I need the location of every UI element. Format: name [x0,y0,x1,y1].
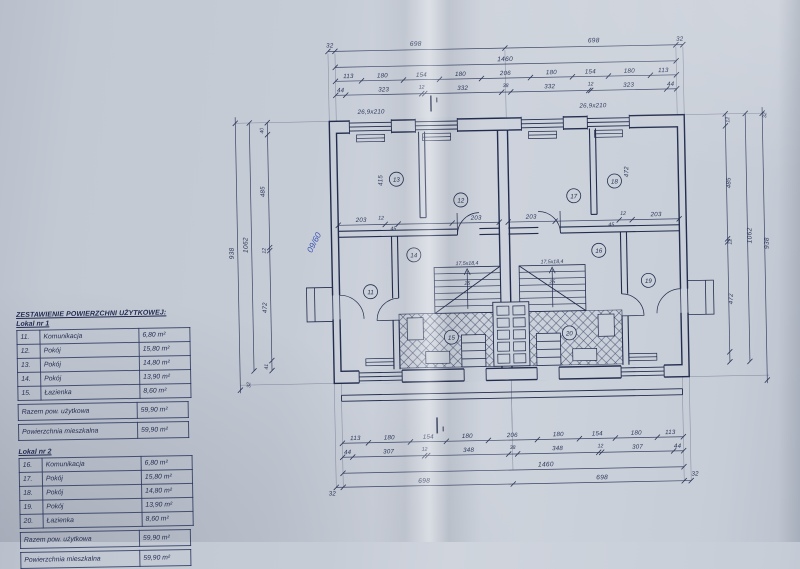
lokal2-living-area: Powierzchnia mieszkalna 59,90 m² [20,549,191,569]
room-number: 18 [611,178,619,185]
lokal1-table: 11. Komunikacja 6,80 m² 12. Pokój 15,80 … [16,327,191,401]
stair-label: 17,5x18,4 [456,261,479,267]
dim-label: 12 [422,447,428,453]
dim-label: 154 [423,434,434,441]
terrace-edge [342,389,683,402]
room-number: 17 [570,193,578,200]
dim-label: 698 [596,474,608,481]
dim-label: 154 [416,72,427,79]
dim-label: 485 [259,186,266,197]
dimension-lines [234,43,769,489]
section-label: I [442,426,444,433]
dim-label: 32 [676,36,684,43]
stair-step-count: 25 [548,279,555,285]
dim-label: 332 [544,83,555,90]
room-area: 13,90 m² [140,369,191,384]
dim-label: 180 [455,71,466,78]
dim-label: 323 [623,82,634,89]
room-number: 13 [393,177,401,184]
dim-label: 113 [350,435,361,442]
dim-label: 1062 [746,227,753,243]
extension-lines [234,45,771,489]
dim-label: 44 [344,449,352,456]
living-value: 59,90 m² [140,549,191,566]
room-no: 11. [17,330,40,344]
dim-label: 206 [506,432,518,439]
dim-label: 180 [624,68,635,75]
room-no: 18. [20,486,43,500]
room-no: 12. [17,344,40,358]
room-number: 12 [457,197,465,204]
dim-label: 206 [499,70,511,77]
living-value: 59,90 m² [137,422,188,439]
dim-label: 203 [470,215,482,222]
room-no: 13. [17,358,40,372]
floor-plan: I I 32 698 1460 698 32 113 180 154 180 2… [217,0,800,530]
table-row: 15. Łazienka 8,60 m² [18,383,191,400]
dim-label: 698 [418,478,430,485]
room-area: 14,80 m² [142,483,193,498]
room-no: 20. [20,514,43,528]
dim-label: 323 [378,86,389,93]
total-label: Razem pow. użytkowa [18,402,137,420]
dim-label: 154 [592,430,603,437]
total-label: Razem pow. użytkowa [20,530,139,548]
dim-label: 32 [691,470,699,477]
dim-label: 472 [728,293,735,304]
dim-label: 203 [525,213,537,220]
room-area: 14,80 m² [139,355,190,370]
dim-label: 1062 [242,237,249,253]
room-number: 16 [595,248,603,255]
dim-label: 32 [246,382,252,388]
dim-label: 332 [457,85,468,92]
dim-label: 180 [377,72,388,79]
staircase-left [434,266,501,313]
dim-label: 44 [337,87,345,94]
room-number: 11 [367,289,374,296]
room-area: 15,80 m² [141,469,192,484]
dim-label: 44 [674,443,682,450]
dim-label: 348 [463,447,474,454]
room-number: 20 [565,330,574,337]
room-name: Łazienka [43,512,142,528]
room-no: 15. [18,386,41,400]
room-no: 14. [18,372,41,386]
dim-label: 203 [355,217,367,224]
room-number: 19 [645,278,653,285]
table-row: 20. Łazienka 8,60 m² [20,511,193,528]
window-size-label: 26,9x210 [356,108,385,116]
room-number: 15 [448,335,456,342]
dim-label: 40 [259,128,265,134]
dim-labels-left: 40 485 12 472 41 1062 938 32 [226,128,270,389]
room-no: 17. [19,472,42,486]
dim-label: 348 [552,445,563,452]
dim-label: 307 [632,443,643,450]
room-area: 6,80 m² [139,327,190,342]
room-no: 19. [20,500,43,514]
dim-label: 1460 [538,461,554,468]
dim-label: 44 [667,81,675,88]
dim-label: 12 [419,85,425,91]
dim-label: 32 [326,42,334,49]
stair-step-count: 25 [463,281,470,287]
dimension-ticks [231,41,772,492]
window-size-label: 26,9x210 [578,102,607,110]
dim-label: 203 [650,211,662,218]
lokal2-table: 16. Komunikacja 6,80 m² 17. Pokój 15,80 … [19,455,194,529]
section-marks: I I [431,95,444,433]
dim-label: 1460 [497,56,513,63]
lokal1-total-usable: Razem pow. użytkowa 59,90 m² [18,401,189,421]
dim-label: 180 [384,434,395,441]
photographed-blueprint-page: { "tables": { "title": "ZESTAWIENIE POWI… [0,0,800,542]
dim-label: 472 [262,302,269,313]
dim-label: 180 [631,430,642,437]
floor-plan-drawing: I I 32 698 1460 698 32 113 180 154 180 2… [217,0,800,530]
dim-label: 154 [585,68,596,75]
dim-label: 485 [725,177,732,188]
total-value: 59,90 m² [139,529,190,546]
dim-label: 12 [598,443,604,449]
dim-label: 38 [510,445,516,451]
dim-label: 307 [383,448,394,455]
dim-label: 12 [728,239,734,245]
section-label: I [436,97,438,104]
dim-label: 12 [620,211,626,217]
living-label: Powierzchnia mieszkalna [21,550,140,568]
dim-label: 180 [546,69,557,76]
dim-label: 113 [665,429,676,436]
dim-label: 45 [608,222,614,228]
area-summary-tables: ZESTAWIENIE POWIERZCHNI UŻYTKOWEJ: Lokal… [16,309,196,569]
dim-label: 32 [329,490,337,497]
chimney-flues [493,302,530,367]
room-area: 15,80 m² [139,341,190,356]
dim-label: 41 [264,364,270,370]
dim-label: 45 [390,226,396,232]
room-area: 8,60 m² [140,383,191,398]
dim-label: 32 [762,112,768,118]
living-label: Powierzchnia mieszkalna [18,422,137,440]
dim-label: 698 [410,41,422,48]
room-area: 13,90 m² [142,497,193,512]
dim-label: 113 [658,67,669,74]
dim-label: 698 [588,37,600,44]
dim-label: 472 [623,166,630,177]
dim-label: 38 [503,83,509,89]
room-name: Łazienka [41,384,140,400]
dim-labels-bottom: 113 180 154 180 206 180 154 180 113 44 3… [328,428,700,497]
dim-label: 180 [553,431,564,438]
room-area: 8,60 m² [142,511,193,526]
dim-label: 113 [343,73,354,80]
dim-label: 12 [588,81,594,87]
dim-label: 415 [377,175,384,186]
dim-label: 938 [229,247,236,259]
room-area: 6,80 m² [141,455,192,470]
handwritten-note: 09/60 [305,230,324,254]
dim-label: 938 [764,237,771,249]
lokal2-total-usable: Razem pow. użytkowa 59,90 m² [20,529,191,549]
dim-label: 12 [725,117,731,123]
room-number: 14 [410,252,418,259]
dim-label: 180 [462,433,473,440]
room-no: 16. [19,458,42,472]
dim-label: 12 [262,248,268,254]
total-value: 59,90 m² [137,402,188,419]
dim-label: 12 [378,215,384,221]
stair-label: 17,5x18,4 [541,259,564,265]
